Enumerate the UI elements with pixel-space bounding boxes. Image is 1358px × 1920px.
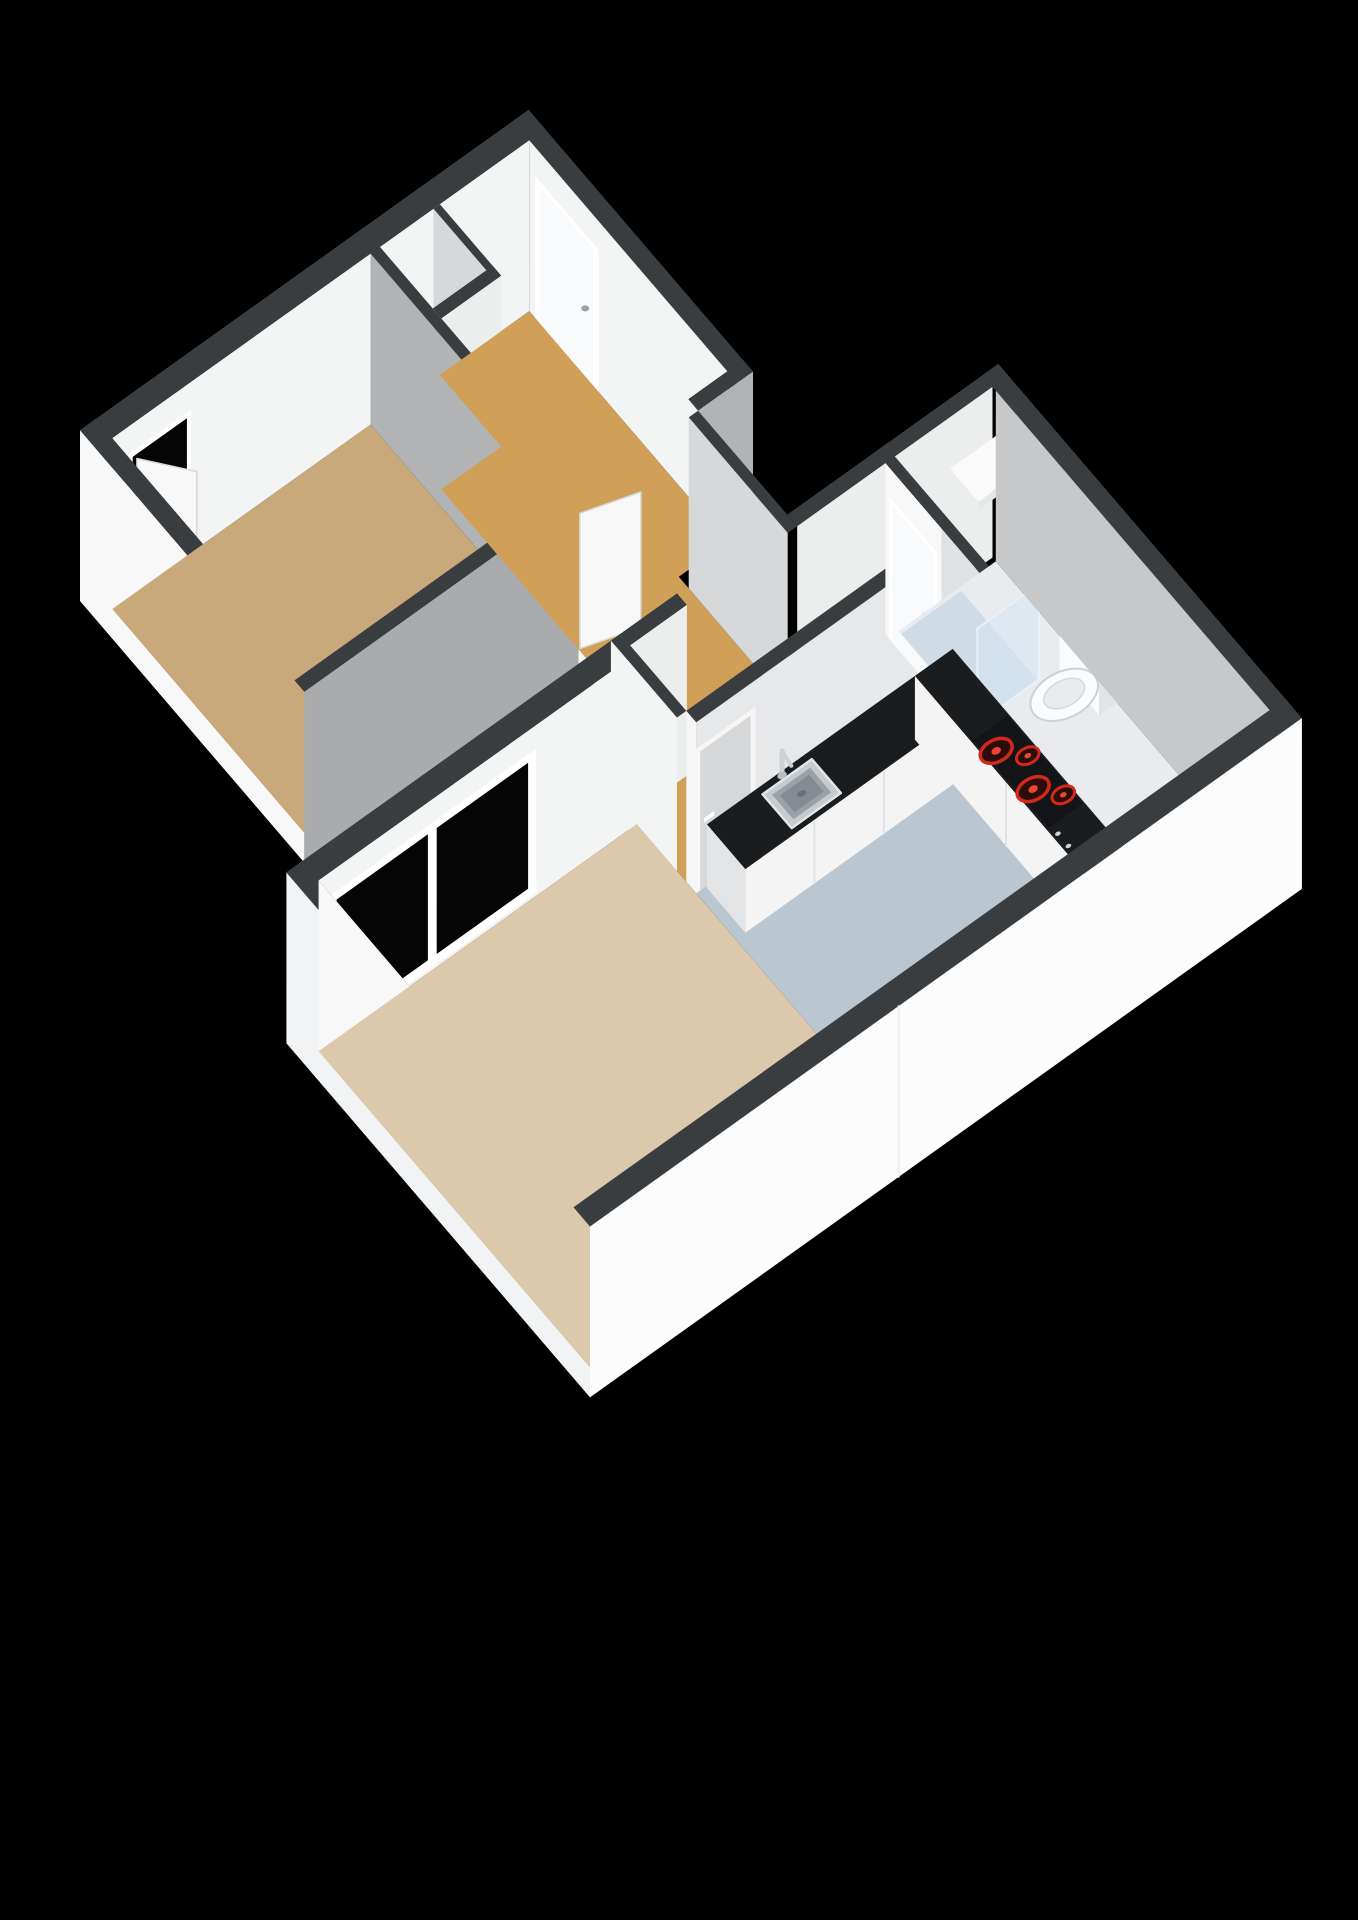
bedroom-hall-door-panel [580,492,641,649]
kitchen-nw-wall-cap [686,711,696,893]
floorplan-3d-view [0,0,1358,1920]
floorplan-stage [0,0,1358,1920]
front-door-handle [581,305,589,311]
